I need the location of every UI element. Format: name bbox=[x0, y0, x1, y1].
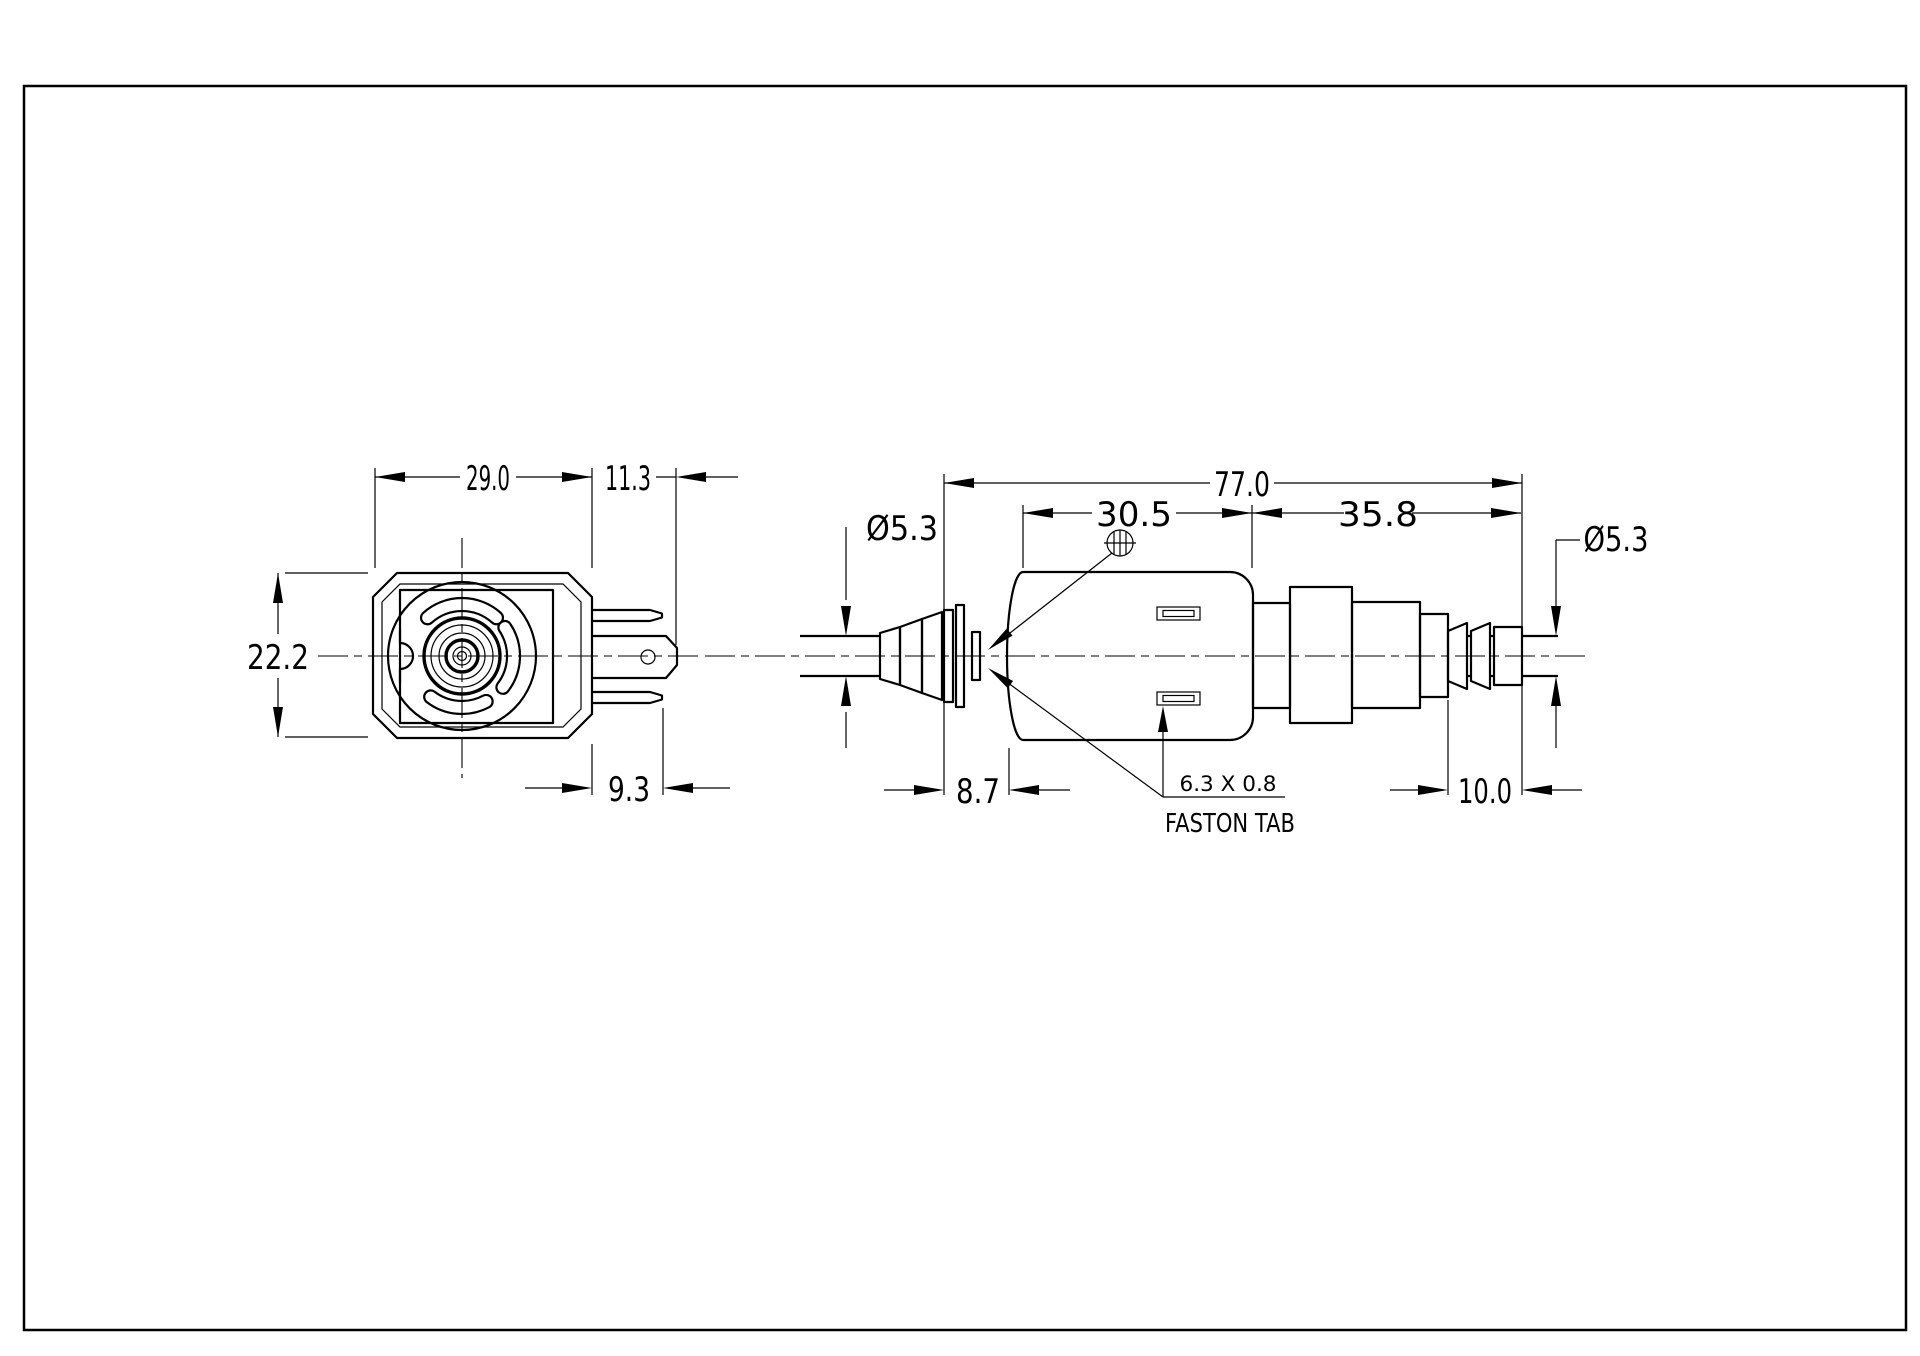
dim-pin-long-label: 11.3 bbox=[605, 459, 651, 499]
dim-pin-short: 9.3 bbox=[525, 708, 730, 810]
drawing-canvas: 29.0 11.3 22.2 9.3 bbox=[0, 0, 1920, 1356]
faston-tab-label: FASTON TAB bbox=[1165, 809, 1295, 839]
dim-body-length-label: 30.5 bbox=[1096, 495, 1172, 535]
front-pin-ground-blade bbox=[592, 636, 677, 678]
dim-outlet-length-label: 35.8 bbox=[1338, 495, 1418, 535]
side-view: 77.0 30.5 35.8 Ø5.3 bbox=[705, 465, 1649, 839]
dim-pin-short-label: 9.3 bbox=[608, 770, 650, 810]
dim-coil-width-label: 29.0 bbox=[466, 459, 510, 499]
dim-inlet-protrusion-label: 8.7 bbox=[956, 772, 1000, 812]
faston-tab-callout: 6.3 X 0.8 FASTON TAB bbox=[988, 668, 1295, 839]
front-pin-top bbox=[592, 610, 662, 621]
front-pin-bottom bbox=[592, 692, 662, 703]
dim-inlet-protrusion: 8.7 bbox=[884, 748, 1070, 812]
sheet-border bbox=[24, 86, 1906, 1330]
faston-tab-top bbox=[1157, 607, 1200, 620]
dim-outlet-length: 35.8 bbox=[1252, 495, 1521, 535]
dim-pin-long: 11.3 bbox=[605, 459, 738, 645]
dim-outlet-barb-length: 10.0 bbox=[1390, 700, 1582, 812]
faston-tab-size-label: 6.3 X 0.8 bbox=[1180, 772, 1277, 796]
dim-inlet-diameter-label: Ø5.3 bbox=[866, 509, 938, 549]
dim-outlet-diameter: Ø5.3 bbox=[1551, 520, 1649, 748]
dim-body-length: 30.5 bbox=[1023, 495, 1252, 568]
dim-body-height-label: 22.2 bbox=[247, 638, 309, 678]
outlet-flange bbox=[1290, 587, 1352, 723]
dim-outlet-diameter-label: Ø5.3 bbox=[1584, 520, 1649, 560]
dim-outlet-barb-length-label: 10.0 bbox=[1458, 772, 1512, 812]
front-pin-hole bbox=[641, 650, 655, 664]
outlet-cylinder bbox=[1352, 602, 1420, 708]
dim-overall-length-label: 77.0 bbox=[1214, 465, 1270, 505]
faston-tab-bottom bbox=[1157, 692, 1200, 705]
front-view: 29.0 11.3 22.2 9.3 bbox=[247, 459, 738, 810]
drawing-sheet: 29.0 11.3 22.2 9.3 bbox=[0, 0, 1920, 1356]
surface-finish-symbol bbox=[988, 530, 1136, 650]
dim-coil-width: 29.0 bbox=[375, 459, 592, 568]
dim-inlet-diameter: Ø5.3 bbox=[841, 509, 938, 748]
dim-body-height: 22.2 bbox=[247, 573, 368, 737]
